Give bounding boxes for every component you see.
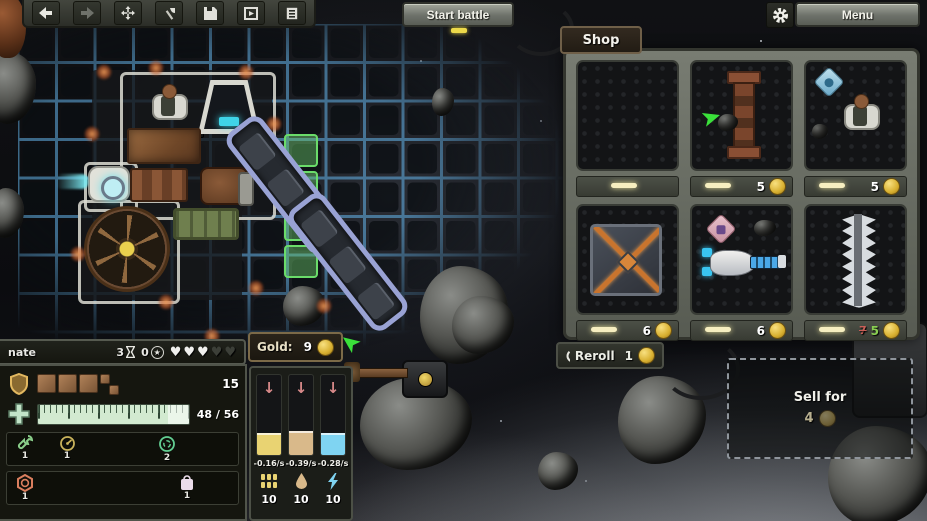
reroll-cost: 1 <box>625 349 633 363</box>
item-count: 1 <box>22 492 28 502</box>
shop-item-laser-cannon[interactable] <box>690 204 793 315</box>
rusty-crate-module[interactable] <box>127 128 201 164</box>
asteroid <box>812 124 828 139</box>
price-bar <box>576 176 679 197</box>
star-circle-icon: ★ <box>151 346 164 359</box>
spike-blade-core <box>854 214 862 306</box>
price-label: 6 <box>757 324 765 338</box>
slot-led <box>705 183 731 188</box>
price-bar: 5 <box>804 176 907 197</box>
shop-slot-4[interactable]: 6 <box>576 204 679 341</box>
coin-icon <box>769 178 786 195</box>
loot-bag-icon <box>179 474 195 491</box>
round-count: 3 <box>116 346 124 359</box>
edit-toolbar <box>22 0 316 28</box>
shop-panel: 5 5 <box>563 48 920 340</box>
armor-blocks <box>37 374 217 395</box>
move-cross-icon <box>121 6 135 20</box>
blueprint-button[interactable] <box>278 1 306 25</box>
coin-icon <box>883 322 900 339</box>
game-screen: Start battle Menu Shop 5 <box>0 0 927 521</box>
rotor-module[interactable] <box>84 206 170 292</box>
heart-icon-empty: ♥ <box>224 346 236 359</box>
armored-plate-art <box>590 224 662 296</box>
gold-value: 9 <box>298 340 312 354</box>
inventory-loot-bag[interactable]: 1 <box>175 474 199 501</box>
slot-led <box>705 327 731 332</box>
fuel-droplet-icon <box>295 471 308 491</box>
gauge-icon <box>59 435 76 451</box>
health-cross-icon <box>6 401 32 427</box>
shop-title: Shop <box>560 26 642 54</box>
item-count: 1 <box>184 491 190 501</box>
undo-icon <box>39 7 53 19</box>
energy-amount: 10 <box>325 493 340 506</box>
gold-label: Gold: <box>257 340 293 354</box>
price-label: 5 <box>871 180 879 194</box>
engine-core <box>101 176 125 200</box>
scorch-mark <box>248 280 264 296</box>
load-ship-button[interactable] <box>237 1 265 25</box>
inventory-reactor[interactable]: 1 <box>13 474 37 502</box>
scorch-mark <box>148 60 164 76</box>
gold-display: Gold: 9 <box>248 332 343 362</box>
item-count: 1 <box>64 451 70 461</box>
drain-arrow-icon: ↓ <box>257 379 281 397</box>
price-bar: 7 5 <box>804 320 907 341</box>
coupler-module[interactable] <box>200 167 248 205</box>
heart-icon: ♥ <box>183 346 195 359</box>
coin-icon <box>883 178 900 195</box>
hull-row: 48 / 56 <box>6 401 239 427</box>
turn-indicator-led <box>451 28 467 33</box>
shop-slot-5[interactable]: 6 <box>690 204 793 341</box>
reroll-icon <box>565 348 570 364</box>
redo-button[interactable] <box>73 1 101 25</box>
cargo-module[interactable] <box>173 208 239 240</box>
round-counter: 3 <box>116 346 135 359</box>
slot-led <box>819 327 845 332</box>
shop-item-armored-plate[interactable] <box>576 204 679 315</box>
slot-led <box>819 183 845 188</box>
coin-icon <box>819 410 836 427</box>
shop-item-crew-member[interactable] <box>804 60 907 171</box>
scorch-mark <box>158 294 174 310</box>
price-bar: 6 <box>690 320 793 341</box>
ammo-gauge: ↓ <box>256 374 282 456</box>
shop-slot-2[interactable]: 5 <box>690 60 793 197</box>
asteroid <box>754 220 776 236</box>
inventory-row-1: 1 1 2 <box>6 432 239 466</box>
scorch-mark <box>84 126 100 142</box>
fuel-gauge: ↓ <box>288 374 314 456</box>
move-button[interactable] <box>114 1 142 25</box>
sell-dropzone[interactable]: Sell for 4 <box>727 358 913 459</box>
crew-member-module[interactable] <box>150 82 186 126</box>
hourglass-icon <box>126 346 135 358</box>
inventory-wrench[interactable]: 1 <box>13 435 37 461</box>
wrench-icon <box>17 435 33 451</box>
shield-ring-icon <box>158 435 176 453</box>
resource-energy: ↓ -0.28/s 10 <box>318 374 348 517</box>
ship-stats-panel: 15 48 / 56 1 1 <box>0 364 247 521</box>
blueprint-icon <box>286 7 298 20</box>
import-icon <box>244 7 258 20</box>
drain-arrow-icon: ↓ <box>321 379 345 397</box>
fuel-amount: 10 <box>293 493 308 506</box>
scorch-mark <box>316 298 332 314</box>
undo-button[interactable] <box>32 1 60 25</box>
coin-icon <box>638 347 655 364</box>
price-bar: 6 <box>576 320 679 341</box>
lives-hearts: ♥ ♥ ♥ ♥ ♥ <box>170 346 236 359</box>
ammo-icon <box>261 471 278 491</box>
slot-led <box>611 183 637 188</box>
menu-button[interactable]: Menu <box>795 2 920 27</box>
heart-icon: ♥ <box>197 346 209 359</box>
hull-value: 48 / 56 <box>197 408 239 421</box>
inventory-row-2: 1 1 <box>6 471 239 505</box>
fuel-rate: -0.39/s <box>286 459 317 468</box>
save-button[interactable] <box>196 1 224 25</box>
save-icon <box>204 7 217 20</box>
energy-gauge: ↓ <box>320 374 346 456</box>
energy-rate: -0.28/s <box>318 459 349 468</box>
shop-slot-empty[interactable] <box>576 60 679 171</box>
old-price-label: 7 <box>859 324 867 337</box>
rarity-badge-icon <box>705 213 736 244</box>
shop-item-spike-blade[interactable] <box>804 204 907 315</box>
laser-cannon-art <box>702 248 786 276</box>
build-tool-button[interactable] <box>155 1 183 25</box>
engine-exhaust <box>56 174 88 189</box>
coin-icon <box>317 339 334 356</box>
mining-pod <box>402 360 448 398</box>
shop-slot-6[interactable]: 7 5 <box>804 204 907 341</box>
shop-slot-1[interactable] <box>576 60 679 197</box>
strut-module[interactable] <box>130 168 188 202</box>
star-count: 0 <box>141 346 149 359</box>
cockpit-screen <box>219 117 239 126</box>
price-label: 5 <box>871 324 879 338</box>
coin-icon <box>655 322 672 339</box>
shield-icon <box>6 371 32 397</box>
resource-panel: ↓ -0.16/s 10 ↓ -0.39/s 10 ↓ <box>249 366 353 521</box>
inventory-gauge[interactable]: 1 <box>55 435 79 461</box>
gear-icon <box>772 7 789 24</box>
inventory-shield-ring[interactable]: 2 <box>155 435 179 463</box>
price-bar: 5 <box>690 176 793 197</box>
axe-icon <box>163 7 176 20</box>
reactor-hex-icon <box>16 474 34 492</box>
player-status-bar: nate 3 0 ★ ♥ ♥ ♥ ♥ ♥ <box>0 339 246 365</box>
price-label: 6 <box>643 324 651 338</box>
scorch-mark <box>70 246 86 262</box>
energy-bolt-icon <box>327 471 339 491</box>
scorch-mark <box>238 64 254 80</box>
item-count: 1 <box>22 451 28 461</box>
reroll-button[interactable]: Reroll 1 <box>556 342 664 369</box>
armor-value: 15 <box>222 377 239 391</box>
coin-icon <box>769 322 786 339</box>
reroll-label: Reroll <box>575 349 615 363</box>
price-label: 5 <box>757 180 765 194</box>
shop-slot-3[interactable]: 5 <box>804 60 907 197</box>
resource-ammo: ↓ -0.16/s 10 <box>254 374 284 517</box>
heart-icon: ♥ <box>170 346 182 359</box>
engine-module[interactable] <box>88 166 130 202</box>
ammo-rate: -0.16/s <box>254 459 285 468</box>
armor-row: 15 <box>6 371 239 397</box>
hull-bar <box>37 404 190 425</box>
pod-drill-arm <box>352 368 408 378</box>
slot-led <box>591 327 617 332</box>
item-count: 2 <box>164 453 170 463</box>
sell-value: 4 <box>804 411 813 426</box>
settings-button[interactable] <box>766 2 794 28</box>
crew-badge-icon <box>813 66 844 97</box>
player-name: nate <box>8 346 110 359</box>
ammo-amount: 10 <box>261 493 276 506</box>
redo-icon <box>80 7 94 19</box>
crew-member-art <box>842 92 878 136</box>
sell-label: Sell for <box>794 390 847 405</box>
star-counter: 0 ★ <box>141 346 164 359</box>
drain-arrow-icon: ↓ <box>289 379 313 397</box>
heart-icon-empty: ♥ <box>211 346 223 359</box>
start-battle-button[interactable]: Start battle <box>402 2 514 27</box>
resource-fuel: ↓ -0.39/s 10 <box>286 374 316 517</box>
pod-window <box>418 372 433 387</box>
scorch-mark <box>96 64 112 80</box>
